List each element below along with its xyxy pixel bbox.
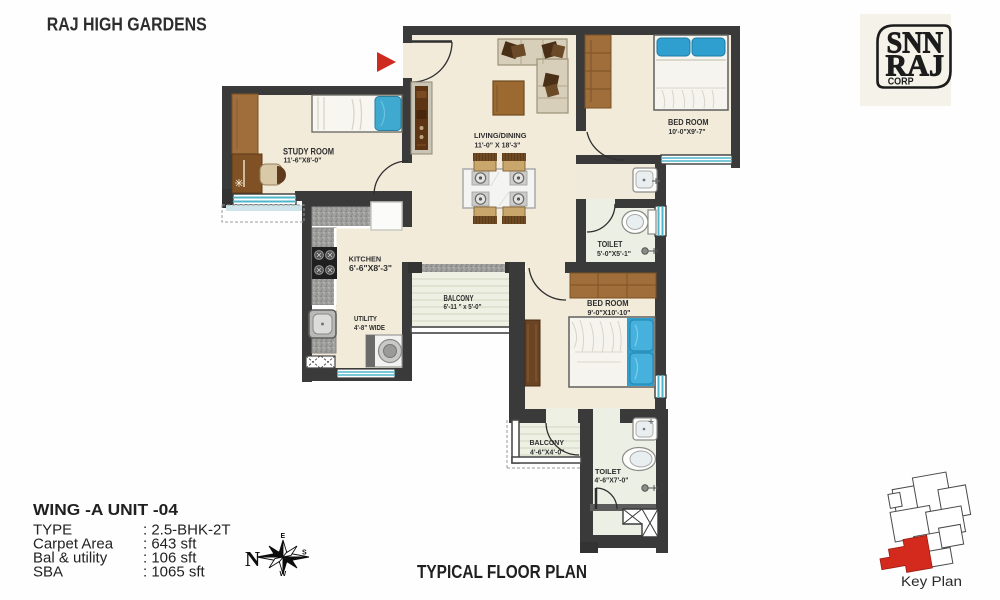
svg-text:4'-6"X4'-0": 4'-6"X4'-0" (530, 448, 565, 457)
svg-text:TOILET: TOILET (598, 239, 624, 249)
svg-text:CORP: CORP (888, 77, 914, 88)
svg-text:W: W (280, 571, 287, 578)
svg-text:N: N (245, 547, 260, 571)
svg-text:10'-0"X9'-7": 10'-0"X9'-7" (669, 127, 706, 136)
svg-text:11'-6"X8'-0": 11'-6"X8'-0" (284, 156, 322, 165)
svg-text:WING -A UNIT -04: WING -A UNIT -04 (33, 502, 178, 519)
svg-text:BALCONY: BALCONY (530, 438, 565, 447)
svg-text:6'-6"X8'-3": 6'-6"X8'-3" (349, 264, 392, 273)
svg-text:9'-0"X10'-10": 9'-0"X10'-10" (588, 308, 631, 317)
svg-text:5'-0"X5'-1": 5'-0"X5'-1" (597, 249, 631, 258)
svg-text:S: S (302, 550, 307, 557)
svg-text:4'-8" WIDE: 4'-8" WIDE (354, 323, 385, 332)
svg-text:LIVING/DINING: LIVING/DINING (474, 131, 527, 140)
svg-text:SBA: SBA (33, 564, 63, 581)
svg-text:: 1065 sft: : 1065 sft (143, 564, 206, 581)
svg-text:UTILITY: UTILITY (354, 314, 377, 323)
svg-text:11'-0" X 18'-3": 11'-0" X 18'-3" (475, 141, 521, 150)
svg-text:E: E (281, 533, 286, 540)
svg-text:6'-11 " x 5'-0": 6'-11 " x 5'-0" (444, 302, 482, 311)
svg-text:BED ROOM: BED ROOM (587, 299, 629, 308)
svg-text:KITCHEN: KITCHEN (349, 255, 381, 264)
svg-text:TYPICAL FLOOR PLAN: TYPICAL FLOOR PLAN (417, 562, 587, 582)
svg-text:RAJ HIGH GARDENS: RAJ HIGH GARDENS (47, 15, 207, 35)
svg-text:BED ROOM: BED ROOM (668, 118, 709, 127)
svg-text:Key Plan: Key Plan (901, 574, 962, 589)
svg-text:4'-6"X7'-0": 4'-6"X7'-0" (595, 476, 629, 485)
